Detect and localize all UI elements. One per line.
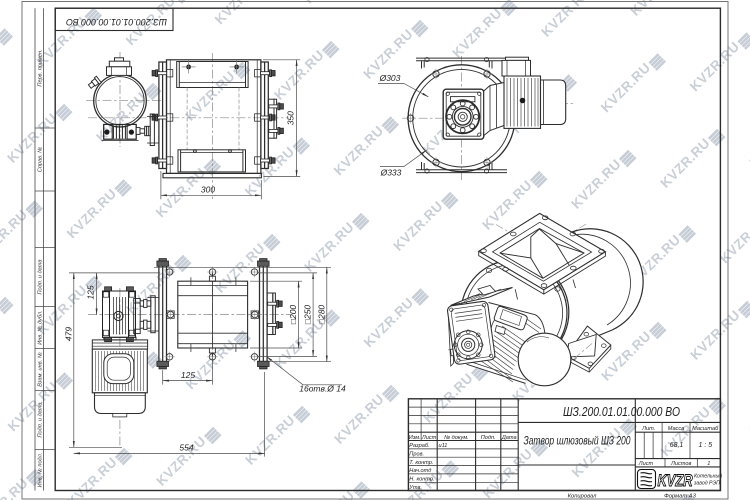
svg-text:Перв. примен.: Перв. примен. bbox=[38, 49, 44, 86]
svg-text:KVZR.RU: KVZR.RU bbox=[717, 479, 750, 500]
svg-text:Лит.: Лит. bbox=[641, 426, 655, 432]
svg-text:Копировал: Копировал bbox=[568, 494, 598, 500]
svg-text:KVZR.RU: KVZR.RU bbox=[64, 454, 120, 500]
svg-text:Нач.отд: Нач.отд bbox=[409, 468, 431, 474]
svg-text:KVZR.RU: KVZR.RU bbox=[361, 295, 417, 351]
svg-text:KVZR.RU: KVZR.RU bbox=[4, 110, 60, 166]
svg-text:KVZR.RU: KVZR.RU bbox=[717, 211, 750, 267]
svg-text:KVZR.RU: KVZR.RU bbox=[746, 114, 750, 170]
svg-text:Н. контр.: Н. контр. bbox=[409, 477, 434, 483]
svg-text:Изм.: Изм. bbox=[409, 435, 421, 441]
svg-text:Справ. №: Справ. № bbox=[38, 147, 44, 172]
svg-text:KVZR.RU: KVZR.RU bbox=[64, 186, 120, 242]
svg-text:Подп. и дата: Подп. и дата bbox=[38, 259, 44, 294]
svg-text:KVZR.RU: KVZR.RU bbox=[212, 0, 268, 27]
svg-text:350: 350 bbox=[285, 111, 295, 125]
svg-text:Подп.: Подп. bbox=[481, 435, 496, 441]
svg-text:KVZR.RU: KVZR.RU bbox=[390, 198, 446, 254]
svg-text:125: 125 bbox=[181, 370, 195, 380]
svg-text:KVZR.RU: KVZR.RU bbox=[568, 156, 624, 212]
svg-text:KVZR.RU: KVZR.RU bbox=[301, 0, 357, 6]
svg-text:KVZR.RU: KVZR.RU bbox=[627, 0, 683, 19]
svg-text:KVZR.RU: KVZR.RU bbox=[538, 0, 594, 40]
svg-text:Пров.: Пров. bbox=[409, 452, 424, 458]
svg-text:Масса: Масса bbox=[668, 426, 685, 432]
svg-text:u11: u11 bbox=[439, 443, 448, 449]
svg-text:KVZR.RU: KVZR.RU bbox=[449, 5, 505, 61]
svg-text:KVZR: KVZR bbox=[658, 472, 693, 490]
svg-text:ШЗ.200.01.01.00.000 ВО: ШЗ.200.01.01.00.000 ВО bbox=[563, 404, 680, 419]
svg-text:Формат А3: Формат А3 bbox=[664, 494, 696, 500]
svg-text:KVZR.RU: KVZR.RU bbox=[480, 446, 536, 500]
svg-text:125: 125 bbox=[86, 285, 96, 299]
svg-text:Листов: Листов bbox=[670, 461, 691, 467]
svg-text:Утв.: Утв. bbox=[408, 485, 422, 491]
svg-text:□250: □250 bbox=[303, 305, 313, 325]
svg-text:KVZR.RU: KVZR.RU bbox=[598, 60, 654, 116]
svg-text:□200: □200 bbox=[288, 305, 298, 325]
svg-text:KVZR.RU: KVZR.RU bbox=[598, 328, 654, 384]
svg-text:№ докум.: № докум. bbox=[444, 435, 469, 441]
svg-text:Лист: Лист bbox=[421, 435, 437, 441]
svg-text:KVZR.RU: KVZR.RU bbox=[242, 144, 298, 200]
svg-text:1: 1 bbox=[707, 461, 710, 467]
svg-text:16отв.Ø 14: 16отв.Ø 14 bbox=[299, 384, 346, 394]
svg-text:479: 479 bbox=[64, 327, 74, 341]
svg-text:Разраб.: Разраб. bbox=[409, 443, 429, 449]
svg-text:Инв. № подл.: Инв. № подл. bbox=[38, 453, 44, 488]
svg-text:KVZR.RU: KVZR.RU bbox=[687, 39, 743, 95]
svg-text:KVZR.RU: KVZR.RU bbox=[301, 219, 357, 275]
svg-text:ШЗ.200.01.01.00.000 ВО: ШЗ.200.01.01.00.000 ВО bbox=[66, 17, 167, 27]
svg-text:KVZR.RU: KVZR.RU bbox=[302, 488, 358, 500]
svg-text:300: 300 bbox=[201, 185, 215, 195]
svg-text:KVZR.RU: KVZR.RU bbox=[153, 433, 209, 489]
svg-text:Подп. и дата: Подп. и дата bbox=[38, 402, 44, 437]
svg-text:KVZR.RU: KVZR.RU bbox=[331, 123, 387, 179]
svg-text:68,1: 68,1 bbox=[670, 442, 684, 449]
svg-text:KVZR.RU: KVZR.RU bbox=[242, 412, 298, 468]
svg-text:1 : 5: 1 : 5 bbox=[698, 442, 712, 449]
svg-text:Затвор шлюзовый ШЗ 200: Затвор шлюзовый ШЗ 200 bbox=[524, 436, 631, 448]
svg-text:KVZR.RU: KVZR.RU bbox=[0, 475, 31, 500]
svg-text:Лист: Лист bbox=[638, 461, 654, 467]
svg-text:KVZR.RU: KVZR.RU bbox=[331, 391, 387, 447]
svg-text:KVZR.RU: KVZR.RU bbox=[0, 207, 30, 263]
svg-text:554: 554 bbox=[179, 443, 193, 453]
svg-text:KVZR.RU: KVZR.RU bbox=[657, 135, 713, 191]
svg-text:KVZR.RU: KVZR.RU bbox=[5, 379, 61, 435]
svg-text:Взам. инв. №: Взам. инв. № bbox=[38, 352, 44, 387]
svg-text:Масштаб: Масштаб bbox=[692, 426, 719, 432]
svg-text:KVZR.RU: KVZR.RU bbox=[182, 68, 238, 124]
svg-text:KVZR.RU: KVZR.RU bbox=[569, 425, 625, 481]
svg-text:Котельный: Котельный bbox=[694, 473, 722, 480]
svg-text:завод РЭП: завод РЭП bbox=[693, 481, 720, 487]
svg-text:Т. контр.: Т. контр. bbox=[409, 460, 433, 466]
svg-text:Дата: Дата bbox=[501, 435, 517, 441]
svg-text:□280: □280 bbox=[316, 305, 326, 325]
svg-text:KVZR.RU: KVZR.RU bbox=[687, 307, 743, 363]
svg-text:KVZR.RU: KVZR.RU bbox=[271, 47, 327, 103]
svg-text:KVZR.RU: KVZR.RU bbox=[0, 303, 1, 359]
svg-text:KVZR.RU: KVZR.RU bbox=[420, 370, 476, 426]
svg-text:Ø303: Ø303 bbox=[379, 73, 401, 83]
svg-text:Инв. № дубл.: Инв. № дубл. bbox=[38, 310, 44, 344]
svg-text:Ø333: Ø333 bbox=[380, 168, 402, 178]
